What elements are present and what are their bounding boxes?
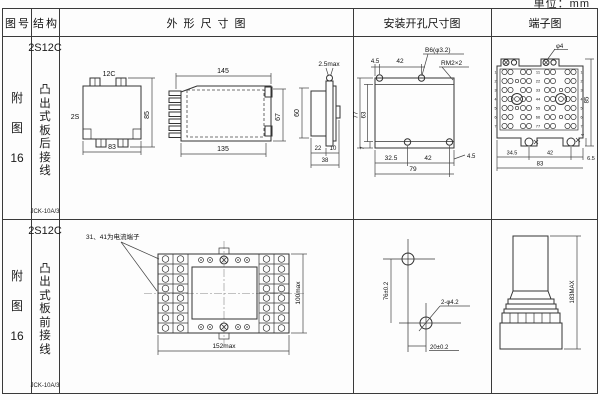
callout-hole: B6(φ3.2) (425, 47, 451, 54)
header-outline: 外形尺寸图 (59, 9, 353, 36)
dim-side-bottom: 135 (217, 146, 229, 153)
type-code: JCK-10A/3 (31, 209, 60, 215)
header-install: 安装开孔尺寸图 (353, 9, 491, 36)
row2-install-drawing: 76±0.2 20±0.2 2-φ4.2 (353, 219, 491, 393)
pair-label: 44 (536, 97, 541, 102)
structure-label: 凸出式板后接线 (38, 84, 52, 179)
fig-char: 附 (11, 261, 23, 291)
pair-label: 55 (536, 106, 541, 111)
row-number: 6 (495, 116, 497, 120)
pair-label: 77 (536, 124, 541, 129)
hole-callout: 2-φ4.2 (441, 300, 459, 306)
header-fig-no: 图号 (3, 9, 31, 36)
dim-horizontal: 20±0.2 (430, 345, 449, 351)
model-label: 2S12C (28, 42, 62, 54)
dim-end-height: 60 (294, 109, 301, 117)
type-code: JCK-10A/3 (31, 383, 60, 389)
fig-num: 16 (10, 143, 23, 173)
row2-terminal-drawing: 183MAX (491, 219, 599, 393)
dim-vertical: 76±0.2 (384, 281, 390, 300)
mounting-screws (503, 60, 556, 66)
dim-bottom-d2: 42 (547, 151, 553, 157)
dim-top-d2: 42 (396, 58, 404, 65)
row-number: 3 (495, 89, 497, 93)
dim-bottom-d2: 42 (424, 155, 432, 162)
dim-end-d2: 10 (330, 146, 337, 152)
fig-char: 图 (11, 291, 23, 321)
header-structure: 结构 (31, 9, 59, 36)
terminal-pair-labels: 11 22 33 44 55 66 77 (536, 70, 541, 129)
feet (525, 138, 580, 146)
row-number: 5 (581, 107, 583, 111)
dim-front-height: 85 (144, 111, 151, 119)
row1-install-drawing: 4.5 42 B6(φ3.2) RM2×2 77 63 7 32.5 42 4.… (353, 36, 491, 219)
structure-label: 凸出式板前接线 (38, 263, 52, 358)
pair-label: 66 (536, 115, 541, 120)
row1-outline-drawing: 12C 2S 83 85 145 (59, 36, 353, 219)
row-number: 2 (581, 80, 583, 84)
dim-top-d1: 4.5 (371, 59, 380, 65)
dim-height: 183MAX (570, 280, 576, 303)
row-number: 2 (495, 80, 497, 84)
end-view: 2.5max 60 22 10 38 (294, 61, 340, 168)
dim-bottom-d3: 4.5 (467, 154, 476, 160)
screw-callout: φ4 (556, 44, 564, 50)
fig-no-row1: 附 图 16 (3, 36, 31, 219)
callout-thread: RM2×2 (441, 60, 463, 67)
model-label: 2S12C (28, 225, 62, 237)
pair-label: 22 (536, 79, 541, 84)
row-number: 3 (581, 89, 583, 93)
row1-terminal-drawing: φ4 11 22 33 44 55 66 77 (491, 36, 599, 219)
pair-label: 33 (536, 88, 541, 93)
dim-left-inner: 63 (362, 111, 368, 118)
dim-bottom-total: 83 (537, 162, 544, 168)
pair-label: 11 (536, 70, 541, 75)
row2-outline-drawing: 31、41为电流端子 (59, 219, 353, 393)
dim-bottom-d1: 34.5 (507, 151, 518, 157)
fig-char: 图 (11, 113, 23, 143)
dim-left-outer: 77 (353, 111, 360, 119)
dim-bottom-left: 7 (360, 146, 366, 149)
datasheet-page: 单位：mm 图号 结构 外形尺寸图 安装开孔尺寸图 端子图 附 图 16 2S1… (0, 0, 600, 400)
dim-front-top: 12C (103, 71, 116, 78)
structure-row1: 2S12C 凸出式板后接线 JCK-10A/3 (31, 36, 59, 219)
side-view: 145 135 67 (169, 68, 286, 157)
dim-width: 152max (212, 343, 236, 350)
dim-terminal-height: 85 (585, 96, 591, 103)
row-number: 4 (495, 98, 497, 102)
structure-row2: 2S12C 凸出式板前接线 JCK-10A/3 (31, 219, 59, 393)
dim-front-width: 83 (108, 144, 116, 151)
relay-profile (500, 236, 562, 349)
current-terminal-note: 31、41为电流端子 (86, 232, 140, 241)
row-number: 5 (495, 107, 497, 111)
row-number: 1 (495, 71, 497, 75)
row-number: 7 (581, 125, 583, 129)
row-number: 7 (495, 125, 497, 129)
row-number: 4 (581, 98, 583, 102)
fig-char: 附 (11, 83, 23, 113)
header-terminal: 端子图 (491, 9, 599, 36)
dim-end-d1: 22 (315, 146, 322, 152)
dim-side-height: 67 (275, 113, 282, 121)
dim-side-top: 145 (217, 68, 229, 75)
row-number: 1 (581, 71, 583, 75)
dim-bottom-total: 79 (409, 166, 417, 173)
dim-front-side: 2S (71, 114, 80, 121)
drawing-table: 图号 结构 外形尺寸图 安装开孔尺寸图 端子图 附 图 16 2S12C 凸出式… (2, 8, 598, 394)
dim-height: 100max (295, 281, 302, 305)
row-number: 6 (581, 116, 583, 120)
front-view: 12C 2S 83 85 (71, 71, 155, 155)
dim-end-top: 2.5max (318, 61, 340, 68)
dim-bottom-d1: 32.5 (385, 155, 398, 162)
fig-num: 16 (10, 321, 23, 351)
dim-bottom-d3: 6.5 (587, 156, 595, 162)
dim-end-total: 38 (322, 158, 329, 164)
fig-no-row2: 附 图 16 (3, 219, 31, 393)
